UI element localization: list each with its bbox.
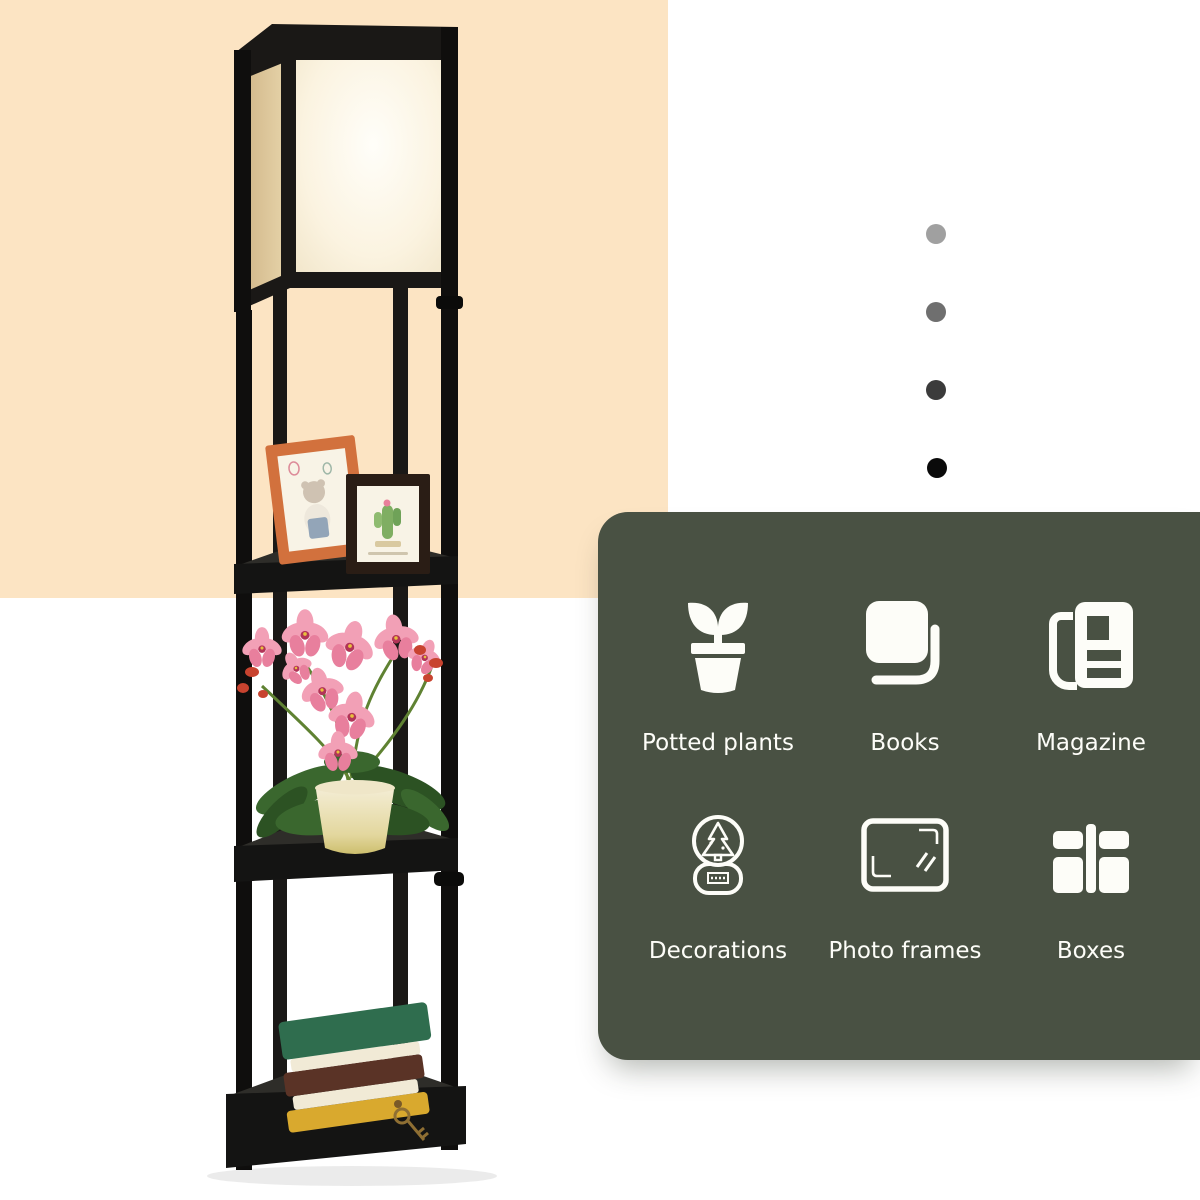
feature-books: Books: [810, 592, 1000, 757]
feature-label: Potted plants: [642, 730, 794, 757]
progress-dot-2: [926, 302, 946, 322]
orchid-pot: [316, 790, 394, 854]
progress-dot-4: [927, 458, 947, 478]
feature-label: Magazine: [1036, 730, 1146, 757]
lampshade: [234, 24, 458, 312]
potted-plant-icon: [686, 599, 750, 696]
dark-photo-frame: [346, 474, 430, 574]
photo-frame-icon: [861, 818, 949, 892]
feature-label: Decorations: [649, 938, 787, 965]
progress-dot-3: [926, 380, 946, 400]
feature-label: Photo frames: [828, 938, 981, 965]
product-image: Potted plants Books: [0, 0, 1200, 1200]
feature-label: Books: [870, 730, 939, 757]
feature-potted-plants: Potted plants: [623, 592, 813, 757]
snow-globe-icon: [688, 813, 748, 897]
floor-lamp-photo: [0, 0, 600, 1200]
orchid-plant: [237, 609, 455, 854]
boxes-icon: [1053, 817, 1129, 893]
feature-label: Boxes: [1057, 938, 1125, 965]
feature-boxes: Boxes: [996, 800, 1186, 965]
features-panel: Potted plants Books: [598, 512, 1200, 1060]
pole-connector-upper: [436, 296, 463, 309]
progress-dot-1: [926, 224, 946, 244]
magazine-icon: [1049, 602, 1133, 692]
feature-magazine: Magazine: [996, 592, 1186, 757]
orchid-flowers: [239, 609, 449, 772]
pole-connector-lower: [434, 872, 464, 886]
feature-decorations: Decorations: [623, 800, 813, 965]
books-stack: [274, 1002, 442, 1133]
book-icon: [866, 601, 944, 694]
feature-photo-frames: Photo frames: [810, 800, 1000, 965]
